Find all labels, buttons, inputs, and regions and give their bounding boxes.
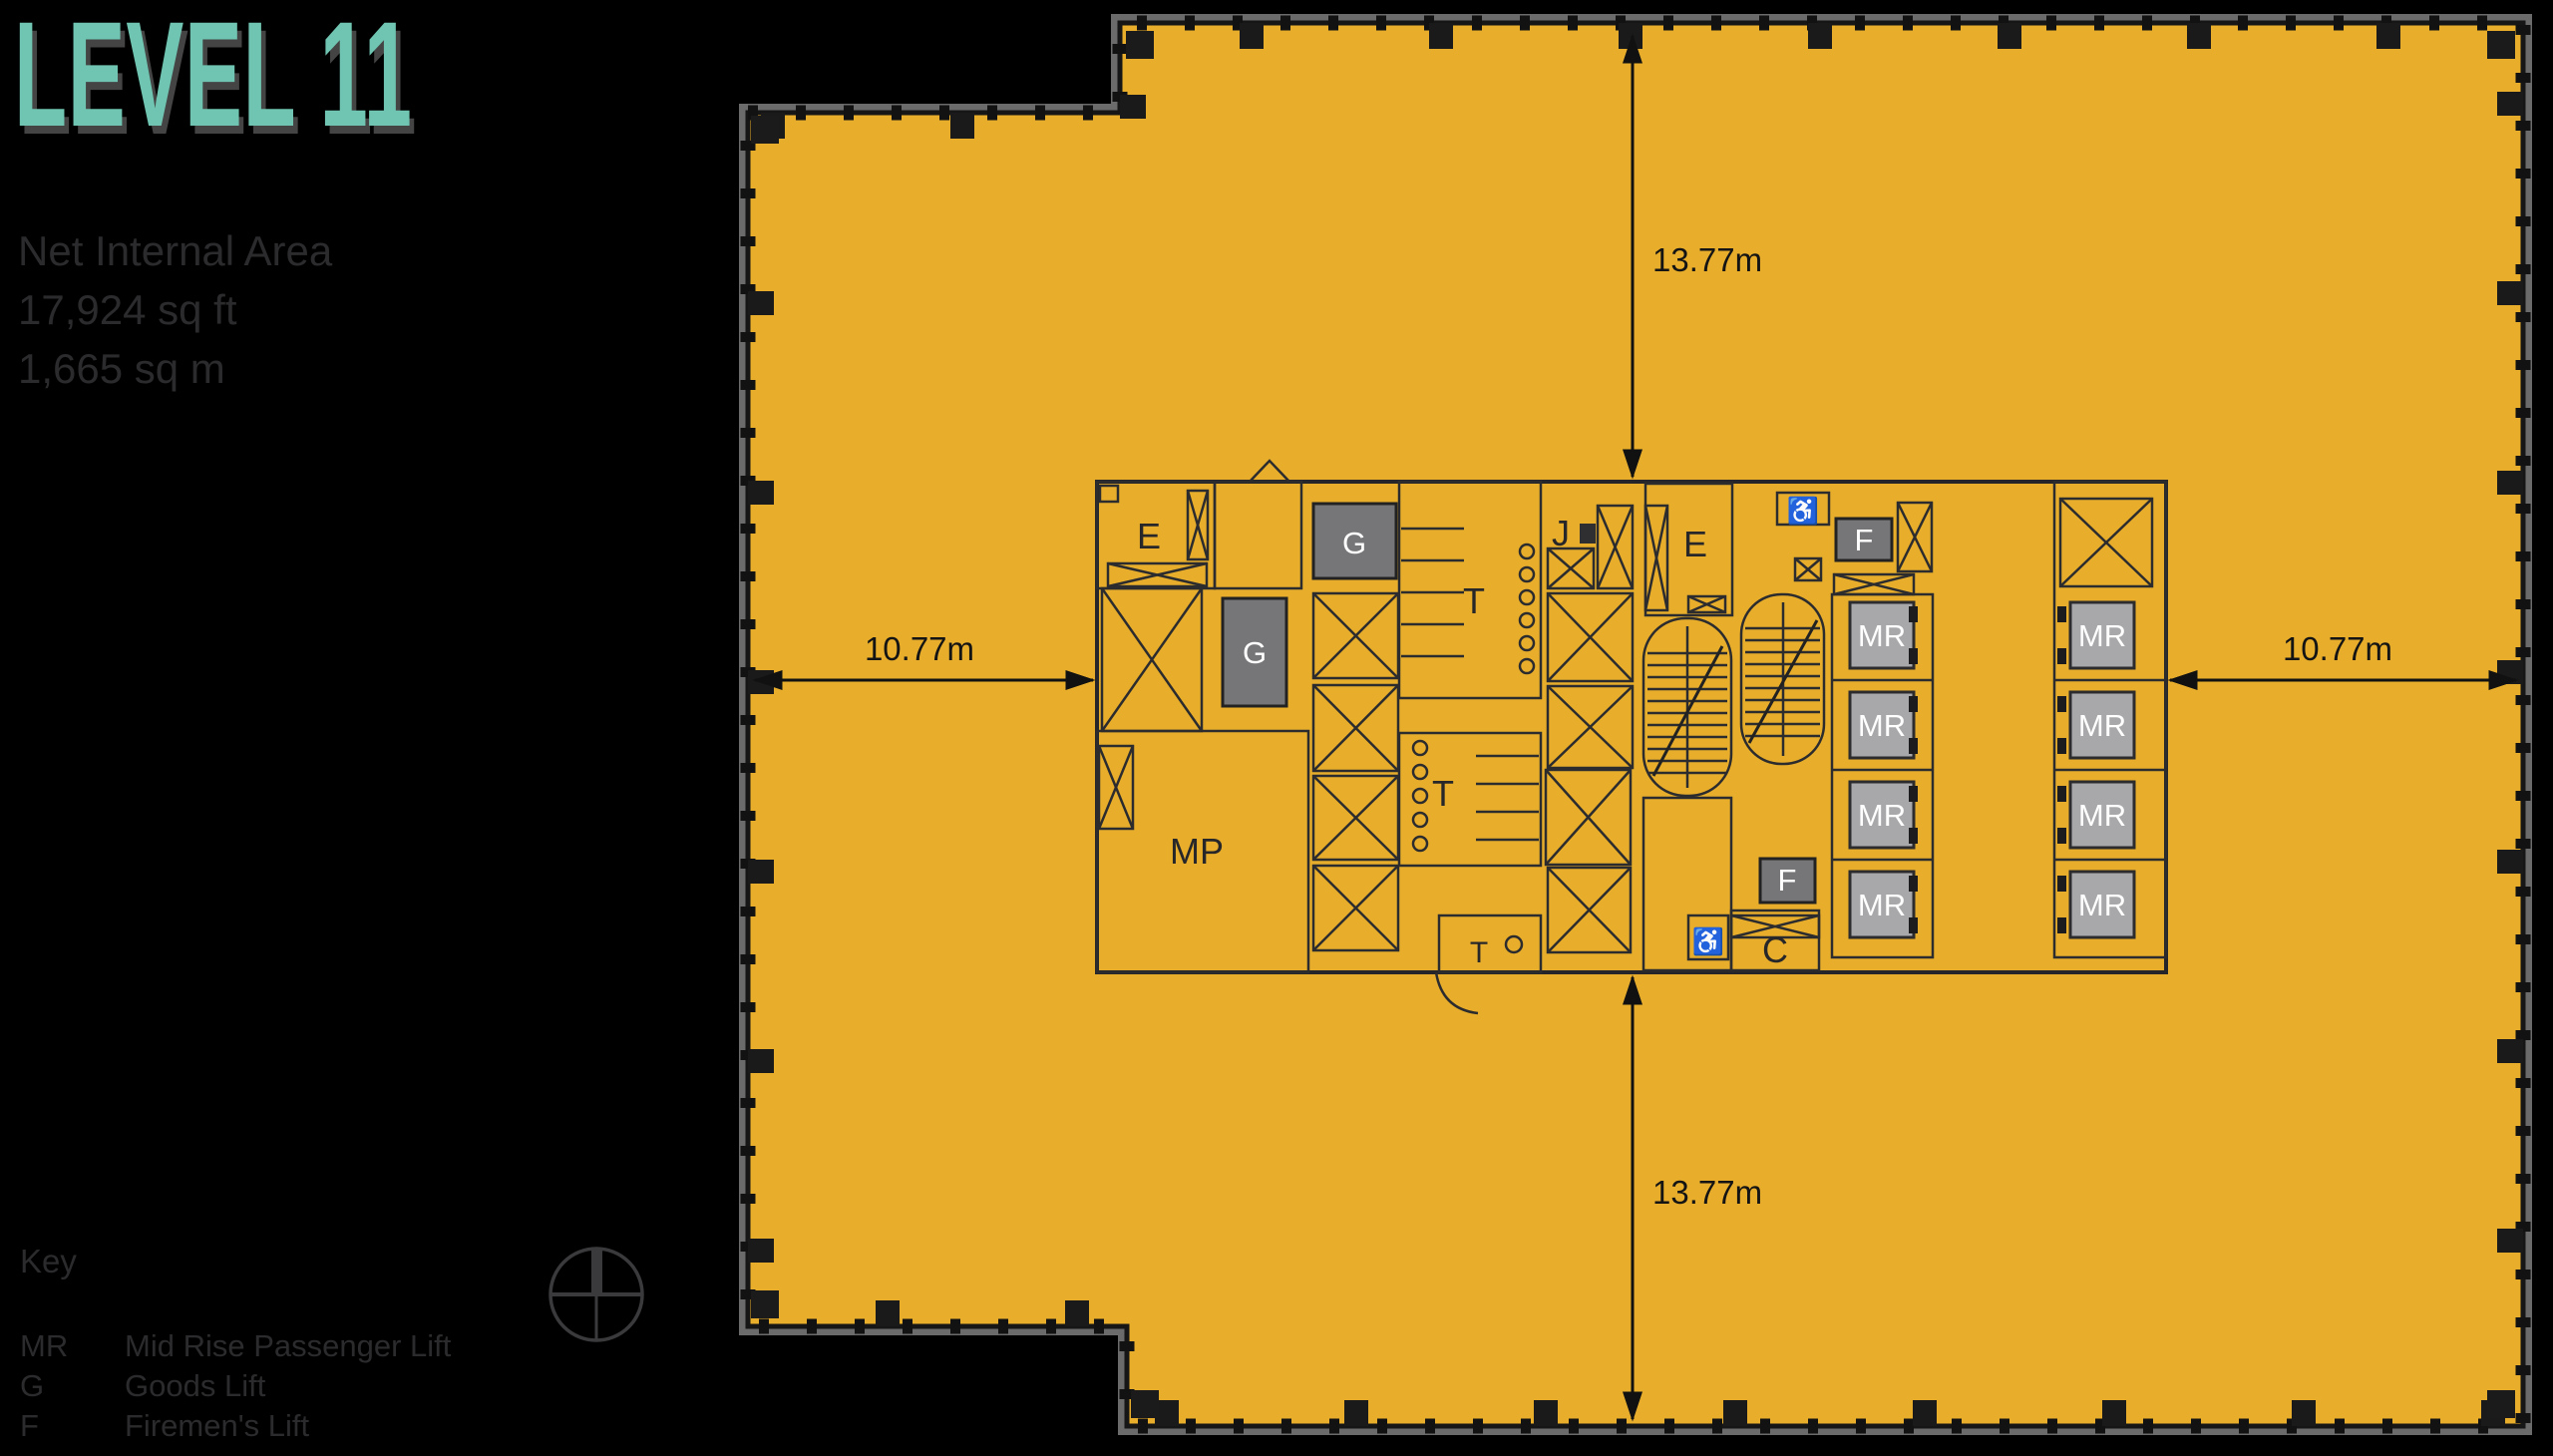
mr-lift: MR [2070,782,2134,848]
goods-lift-1: G [1313,504,1396,578]
mr-lift: MR [1850,872,1914,937]
goods-lift-label: G [1243,635,1267,670]
mr-lift: MR [1850,782,1914,848]
accessible-wc-icon: ♿ [1692,926,1724,956]
floorplan-svg: E MP [0,0,2553,1456]
mr-lift-label: MR [1858,798,1906,833]
room-label-c: C [1762,929,1788,970]
mr-lift-label: MR [2078,708,2126,743]
mr-lift-label: MR [1858,618,1906,653]
dim-label-top: 13.77m [1652,241,1762,278]
room-label-j: J [1552,513,1570,553]
mr-lift: MR [2070,602,2134,668]
dim-label-right: 10.77m [2283,630,2392,667]
accessible-wc-icon: ♿ [1787,496,1819,526]
room-label-e-left: E [1137,516,1161,556]
mr-lift-label: MR [1858,888,1906,922]
dim-label-left: 10.77m [865,630,974,667]
building-outline [748,23,2523,1426]
goods-lift-label: G [1342,526,1366,560]
room-label-t-small: T [1470,936,1488,969]
room-label-t-top: T [1463,580,1485,621]
mr-lift-label: MR [2078,618,2126,653]
firemens-lift-label: F [1778,863,1797,898]
mr-lift: MR [2070,872,2134,937]
dim-label-bottom: 13.77m [1652,1174,1762,1211]
mr-lift-label: MR [2078,798,2126,833]
mr-lift-label: MR [2078,888,2126,922]
firemens-lift-top: F [1836,519,1892,560]
room-label-mp: MP [1170,831,1224,872]
mr-lift: MR [1850,602,1914,668]
floorplan-page: LEVEL 11 Net Internal Area 17,924 sq ft … [0,0,2553,1456]
goods-lift-2: G [1223,598,1286,706]
mr-lift: MR [1850,692,1914,758]
firemens-lift-label: F [1855,523,1874,557]
room-label-t-lower: T [1432,773,1454,814]
room-label-e-right: E [1683,524,1707,564]
mr-lift-label: MR [1858,708,1906,743]
mr-lift: MR [2070,692,2134,758]
firemens-lift-bottom: F [1760,859,1815,903]
